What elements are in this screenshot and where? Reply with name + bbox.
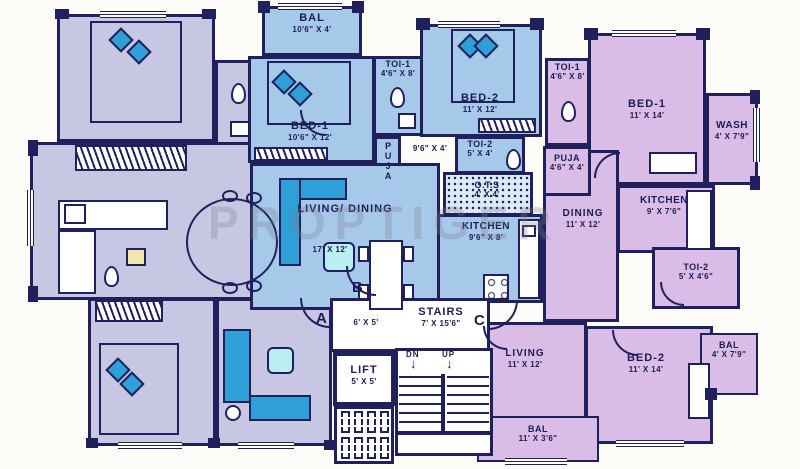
room-name: BAL	[488, 424, 588, 434]
mat-tile	[354, 411, 363, 433]
room-dim: 4' X 7'9"	[707, 132, 757, 141]
wall-pier	[324, 440, 336, 450]
sofa	[249, 395, 311, 421]
room-dim: 9'6" X 4'	[402, 144, 458, 153]
side-table	[225, 405, 241, 421]
wall-pier	[705, 388, 717, 400]
passage-b-label: 9'6" X 4'	[402, 144, 458, 153]
room-dim: 4'6" X 8'	[373, 69, 423, 78]
room-living-dining-b	[250, 163, 440, 310]
living-dining-b-dim: 17' X 12'	[295, 245, 365, 254]
room-dim: 11' X 12'	[430, 105, 530, 114]
room-dim: 10'6" X 4'	[266, 25, 358, 34]
wall-pier	[416, 18, 430, 30]
toi1-b-label: TOI-1 4'6" X 8'	[373, 59, 423, 79]
room-name: BAL	[266, 12, 358, 25]
toi2-b-label: TOI-2 5' X 4'	[456, 139, 504, 159]
window	[505, 458, 567, 465]
wall-pier	[750, 176, 760, 190]
room-dim: 5' X 4'	[456, 149, 504, 158]
room-name: LIFT	[338, 364, 390, 377]
bed1-c-label: BED-1 11' X 14'	[594, 98, 700, 120]
chair-icon	[403, 284, 414, 300]
room-name: TOI-2	[456, 139, 504, 149]
chair-icon	[222, 190, 238, 202]
lift-label: LIFT 5' X 5'	[338, 364, 390, 386]
mat-tile	[354, 437, 363, 459]
window	[238, 442, 294, 449]
bal-side-c-label: BAL 4' X 7'9"	[702, 340, 756, 360]
room-dim: 4'6" X 8'	[545, 72, 590, 81]
bed2-c-label: BED-2 11' X 14'	[598, 352, 694, 374]
stairs-treads	[399, 376, 441, 430]
mat-tile	[341, 437, 350, 459]
chair-icon	[246, 192, 262, 204]
room-name: LIVING	[485, 348, 565, 360]
room-name: BED-2	[598, 352, 694, 365]
ots-b-label: O.T.S 4' X 4'	[447, 180, 527, 200]
wardrobe-hatch	[95, 300, 163, 322]
bed2-b-label: BED-2 11' X 12'	[430, 92, 530, 114]
room-name: STAIRS	[396, 306, 486, 319]
room-dim: 10'6" X 12'	[260, 133, 360, 142]
room-name: O.T.S	[447, 180, 527, 190]
toilet-icon	[390, 87, 405, 108]
room-dim: 11' X 14'	[598, 365, 694, 374]
wall-pier	[750, 90, 760, 104]
room-dim: 9' X 7'6"	[622, 207, 706, 216]
kitchen-c-label: KITCHEN 9' X 7'6"	[622, 195, 706, 216]
chair-icon	[246, 280, 262, 292]
wall-pier	[28, 286, 38, 302]
room-dim: 11' X 14'	[594, 111, 700, 120]
dresser	[649, 152, 697, 174]
room-dim: 5' X 4'6"	[658, 272, 734, 281]
sofa	[223, 329, 251, 403]
puja-c-label: PUJA 4'6" X 4'	[544, 153, 590, 173]
window	[616, 440, 684, 447]
room-dim: 4' X 4'	[447, 190, 527, 199]
puja-b-label: PUJA	[379, 141, 397, 185]
floor-plan: BAL 10'6" X 4' BED-1 10'6" X 12' TOI-1 4…	[0, 0, 800, 469]
unit-a-label: A	[316, 310, 327, 327]
toi2-c-label: TOI-2 5' X 4'6"	[658, 262, 734, 282]
dining-table	[186, 198, 278, 286]
window	[278, 3, 342, 10]
room-name: DINING	[548, 208, 618, 220]
wall-pier	[584, 28, 598, 40]
wardrobe-hatch	[254, 147, 328, 161]
room-dim: 11' X 12'	[548, 220, 618, 229]
room-name: KITCHEN	[622, 195, 706, 207]
toilet-icon	[506, 149, 521, 170]
room-bed-top-a	[57, 14, 215, 142]
mat-tile	[367, 437, 376, 459]
stairs-label: STAIRS 7' X 15'6"	[396, 306, 486, 328]
stairs-landing	[395, 432, 493, 456]
room-name: BED-2	[430, 92, 530, 105]
wall-pier	[530, 18, 544, 30]
room-name: TOI-1	[373, 59, 423, 69]
stove-burners-icon	[483, 274, 509, 300]
wall-pier	[208, 438, 220, 448]
toilet-icon	[231, 83, 246, 104]
stairs-treads	[447, 376, 489, 430]
window	[27, 190, 34, 246]
room-dim: 7' X 15'6"	[396, 319, 486, 328]
room-name: PUJA	[383, 141, 393, 181]
down-arrow-icon: ↓	[446, 356, 453, 371]
mat-tile	[367, 411, 376, 433]
bed1-b-label: BED-1 10'6" X 12'	[260, 120, 360, 142]
wardrobe-hatch	[478, 118, 536, 133]
room-bed2-c	[585, 326, 713, 444]
wall-pier	[202, 9, 216, 19]
room-name: WASH	[707, 120, 757, 132]
sink-icon	[64, 204, 86, 224]
room-name: KITCHEN	[446, 221, 526, 233]
room-dim: 17' X 12'	[295, 245, 365, 254]
room-dim: 11' X 12'	[485, 360, 565, 369]
window	[438, 21, 500, 28]
window	[612, 30, 676, 37]
wall-pier	[55, 9, 69, 19]
room-dim: 4'6" X 4'	[544, 163, 590, 172]
kitchen-b-label: KITCHEN 9'6" X 8'	[446, 221, 526, 242]
washbasin-icon	[126, 248, 146, 266]
room-name: PUJA	[544, 153, 590, 163]
living-c-label: LIVING 11' X 12'	[485, 348, 565, 369]
room-name: BAL	[702, 340, 756, 350]
room-name: BED-1	[594, 98, 700, 111]
chair-icon	[403, 246, 414, 262]
room-name: LIVING/ DINING	[270, 203, 420, 216]
wash-c-label: WASH 4' X 7'9"	[707, 120, 757, 141]
washbasin-icon	[398, 113, 416, 129]
wall-pier	[86, 438, 98, 448]
room-dim: 6' X 5'	[344, 318, 388, 327]
kitchen-counter	[58, 230, 96, 294]
entry-mat	[341, 411, 389, 461]
unit-c-label: C	[474, 312, 485, 329]
toilet-icon	[561, 101, 576, 122]
living-dining-b-label: LIVING/ DINING	[270, 203, 420, 216]
room-name: TOI-1	[545, 62, 590, 72]
room-name: TOI-2	[658, 262, 734, 272]
bal-bottom-c-label: BAL 11' X 3'6"	[488, 424, 588, 444]
window	[753, 108, 760, 162]
room-dim: 9'6" X 8'	[446, 233, 526, 242]
bal-b-label: BAL 10'6" X 4'	[266, 12, 358, 34]
wall-pier	[28, 140, 38, 156]
room-name: BED-1	[260, 120, 360, 133]
room-dim: 4' X 7'9"	[702, 350, 756, 359]
stairs-divider	[441, 374, 445, 432]
sofa	[299, 178, 347, 200]
mat-tile	[380, 411, 389, 433]
toi1-c-label: TOI-1 4'6" X 8'	[545, 62, 590, 82]
wardrobe-hatch	[75, 145, 187, 171]
coffee-table	[267, 347, 294, 374]
room-dim: 11' X 3'6"	[488, 434, 588, 443]
washbasin-icon	[230, 121, 250, 137]
dining-c-label: DINING 11' X 12'	[548, 208, 618, 229]
room-dim: 5' X 5'	[338, 377, 390, 386]
unit-b-label: B	[352, 279, 363, 296]
wall-pier	[696, 28, 710, 40]
window	[118, 442, 182, 449]
toilet-icon	[104, 266, 119, 287]
double-bed	[90, 21, 182, 123]
window	[100, 11, 166, 18]
chair-icon	[222, 282, 238, 294]
mat-tile	[341, 411, 350, 433]
lobby-dim: 6' X 5'	[344, 318, 388, 327]
down-arrow-icon: ↓	[410, 356, 417, 371]
mat-tile	[380, 437, 389, 459]
room-puja-b: PUJA	[374, 136, 401, 186]
